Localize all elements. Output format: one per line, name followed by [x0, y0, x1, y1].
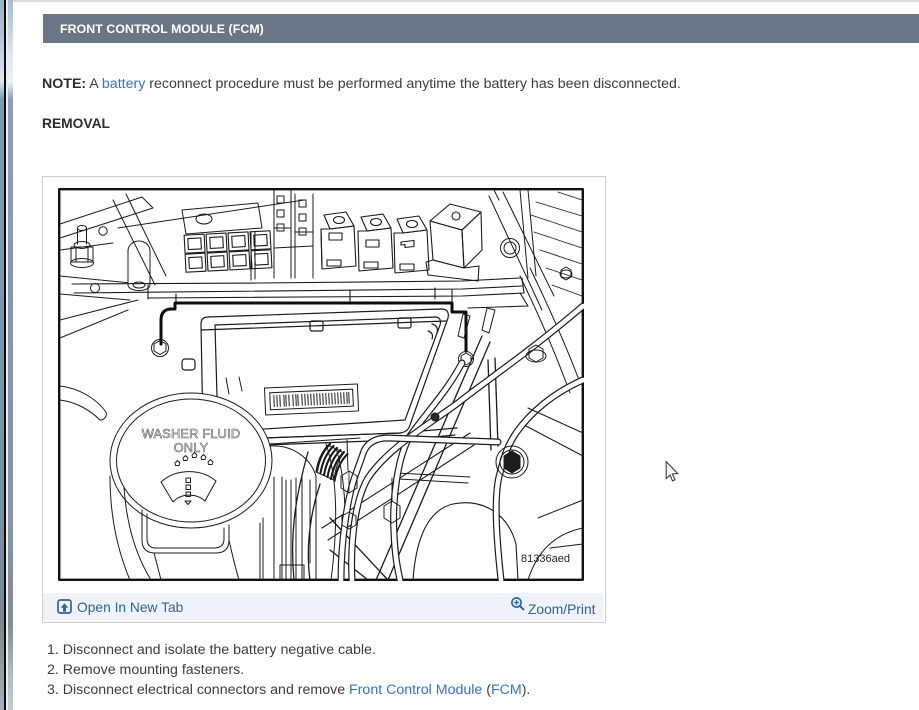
svg-text:81336aed: 81336aed [521, 553, 570, 565]
svg-text:WASHER FLUID: WASHER FLUID [142, 426, 241, 441]
svg-text:ONLY: ONLY [174, 440, 209, 455]
